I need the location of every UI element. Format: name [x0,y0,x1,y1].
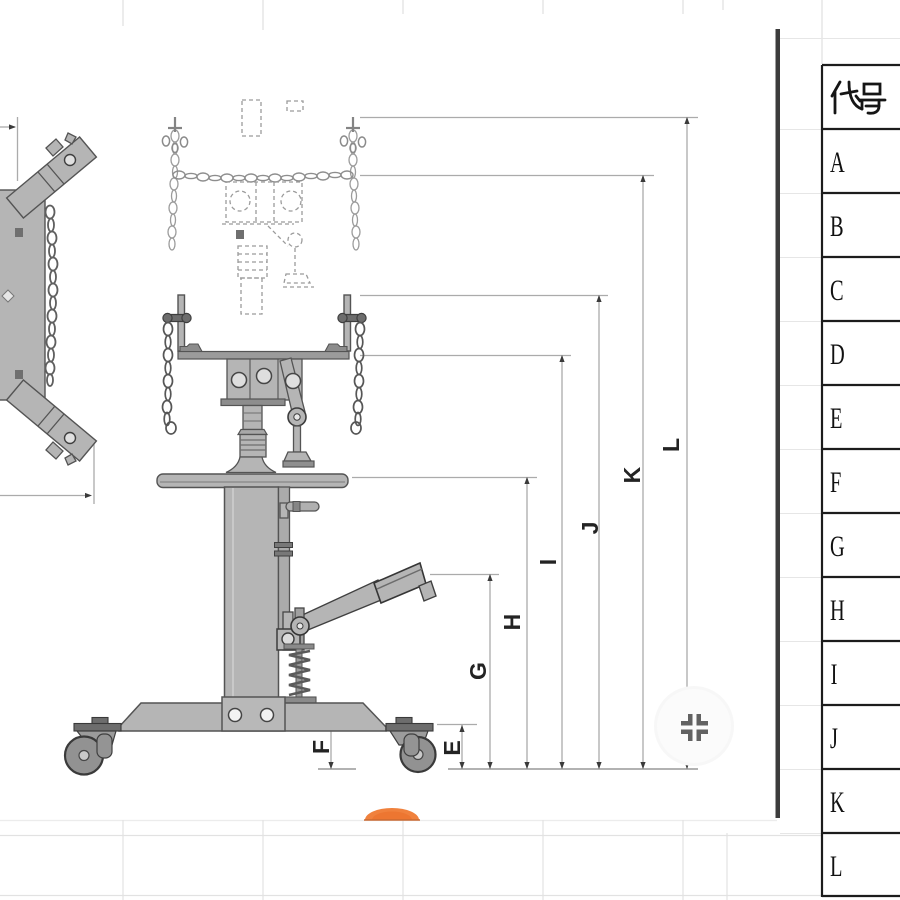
svg-text:J: J [830,721,838,755]
svg-text:H: H [830,593,845,627]
svg-text:H: H [499,614,525,631]
svg-text:G: G [830,529,845,563]
svg-text:I: I [831,657,838,691]
svg-text:K: K [619,466,645,483]
svg-text:F: F [308,740,334,754]
svg-text:A: A [830,145,845,179]
svg-text:B: B [830,209,844,243]
svg-text:E: E [439,740,465,755]
svg-text:L: L [830,849,842,883]
svg-text:I: I [535,559,561,565]
svg-text:J: J [577,522,603,535]
svg-text:K: K [830,785,845,819]
svg-text:E: E [830,401,842,435]
svg-text:G: G [465,662,491,680]
svg-text:C: C [830,273,844,307]
svg-text:F: F [830,465,841,499]
svg-text:L: L [658,438,684,452]
svg-text:D: D [830,337,845,371]
